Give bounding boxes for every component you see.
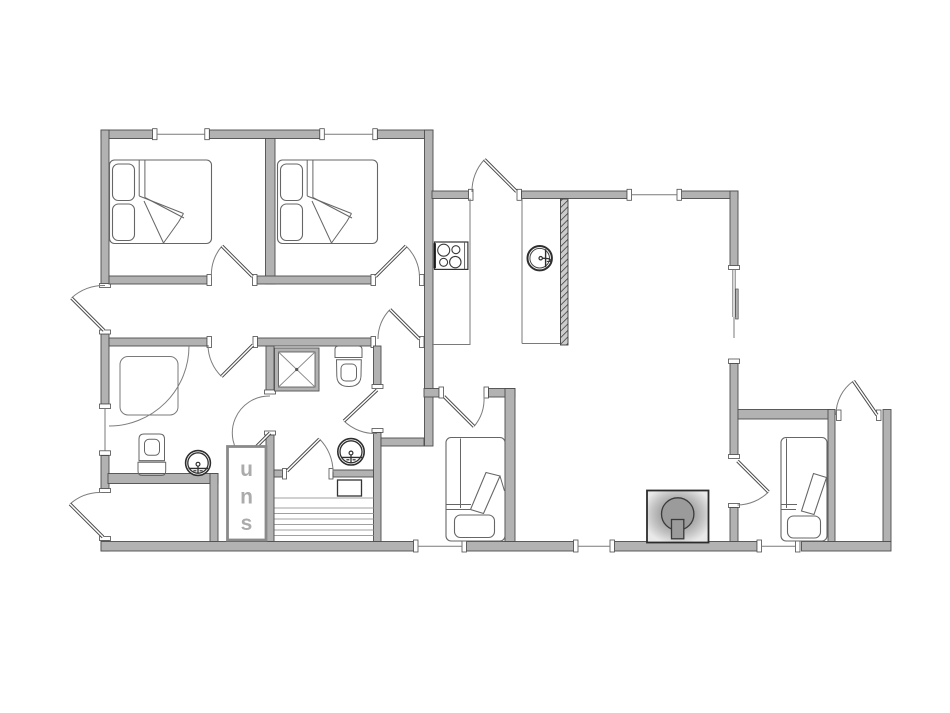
svg-text:u: u <box>240 458 253 481</box>
svg-text:n: n <box>240 486 253 509</box>
svg-text:s: s <box>241 512 253 535</box>
